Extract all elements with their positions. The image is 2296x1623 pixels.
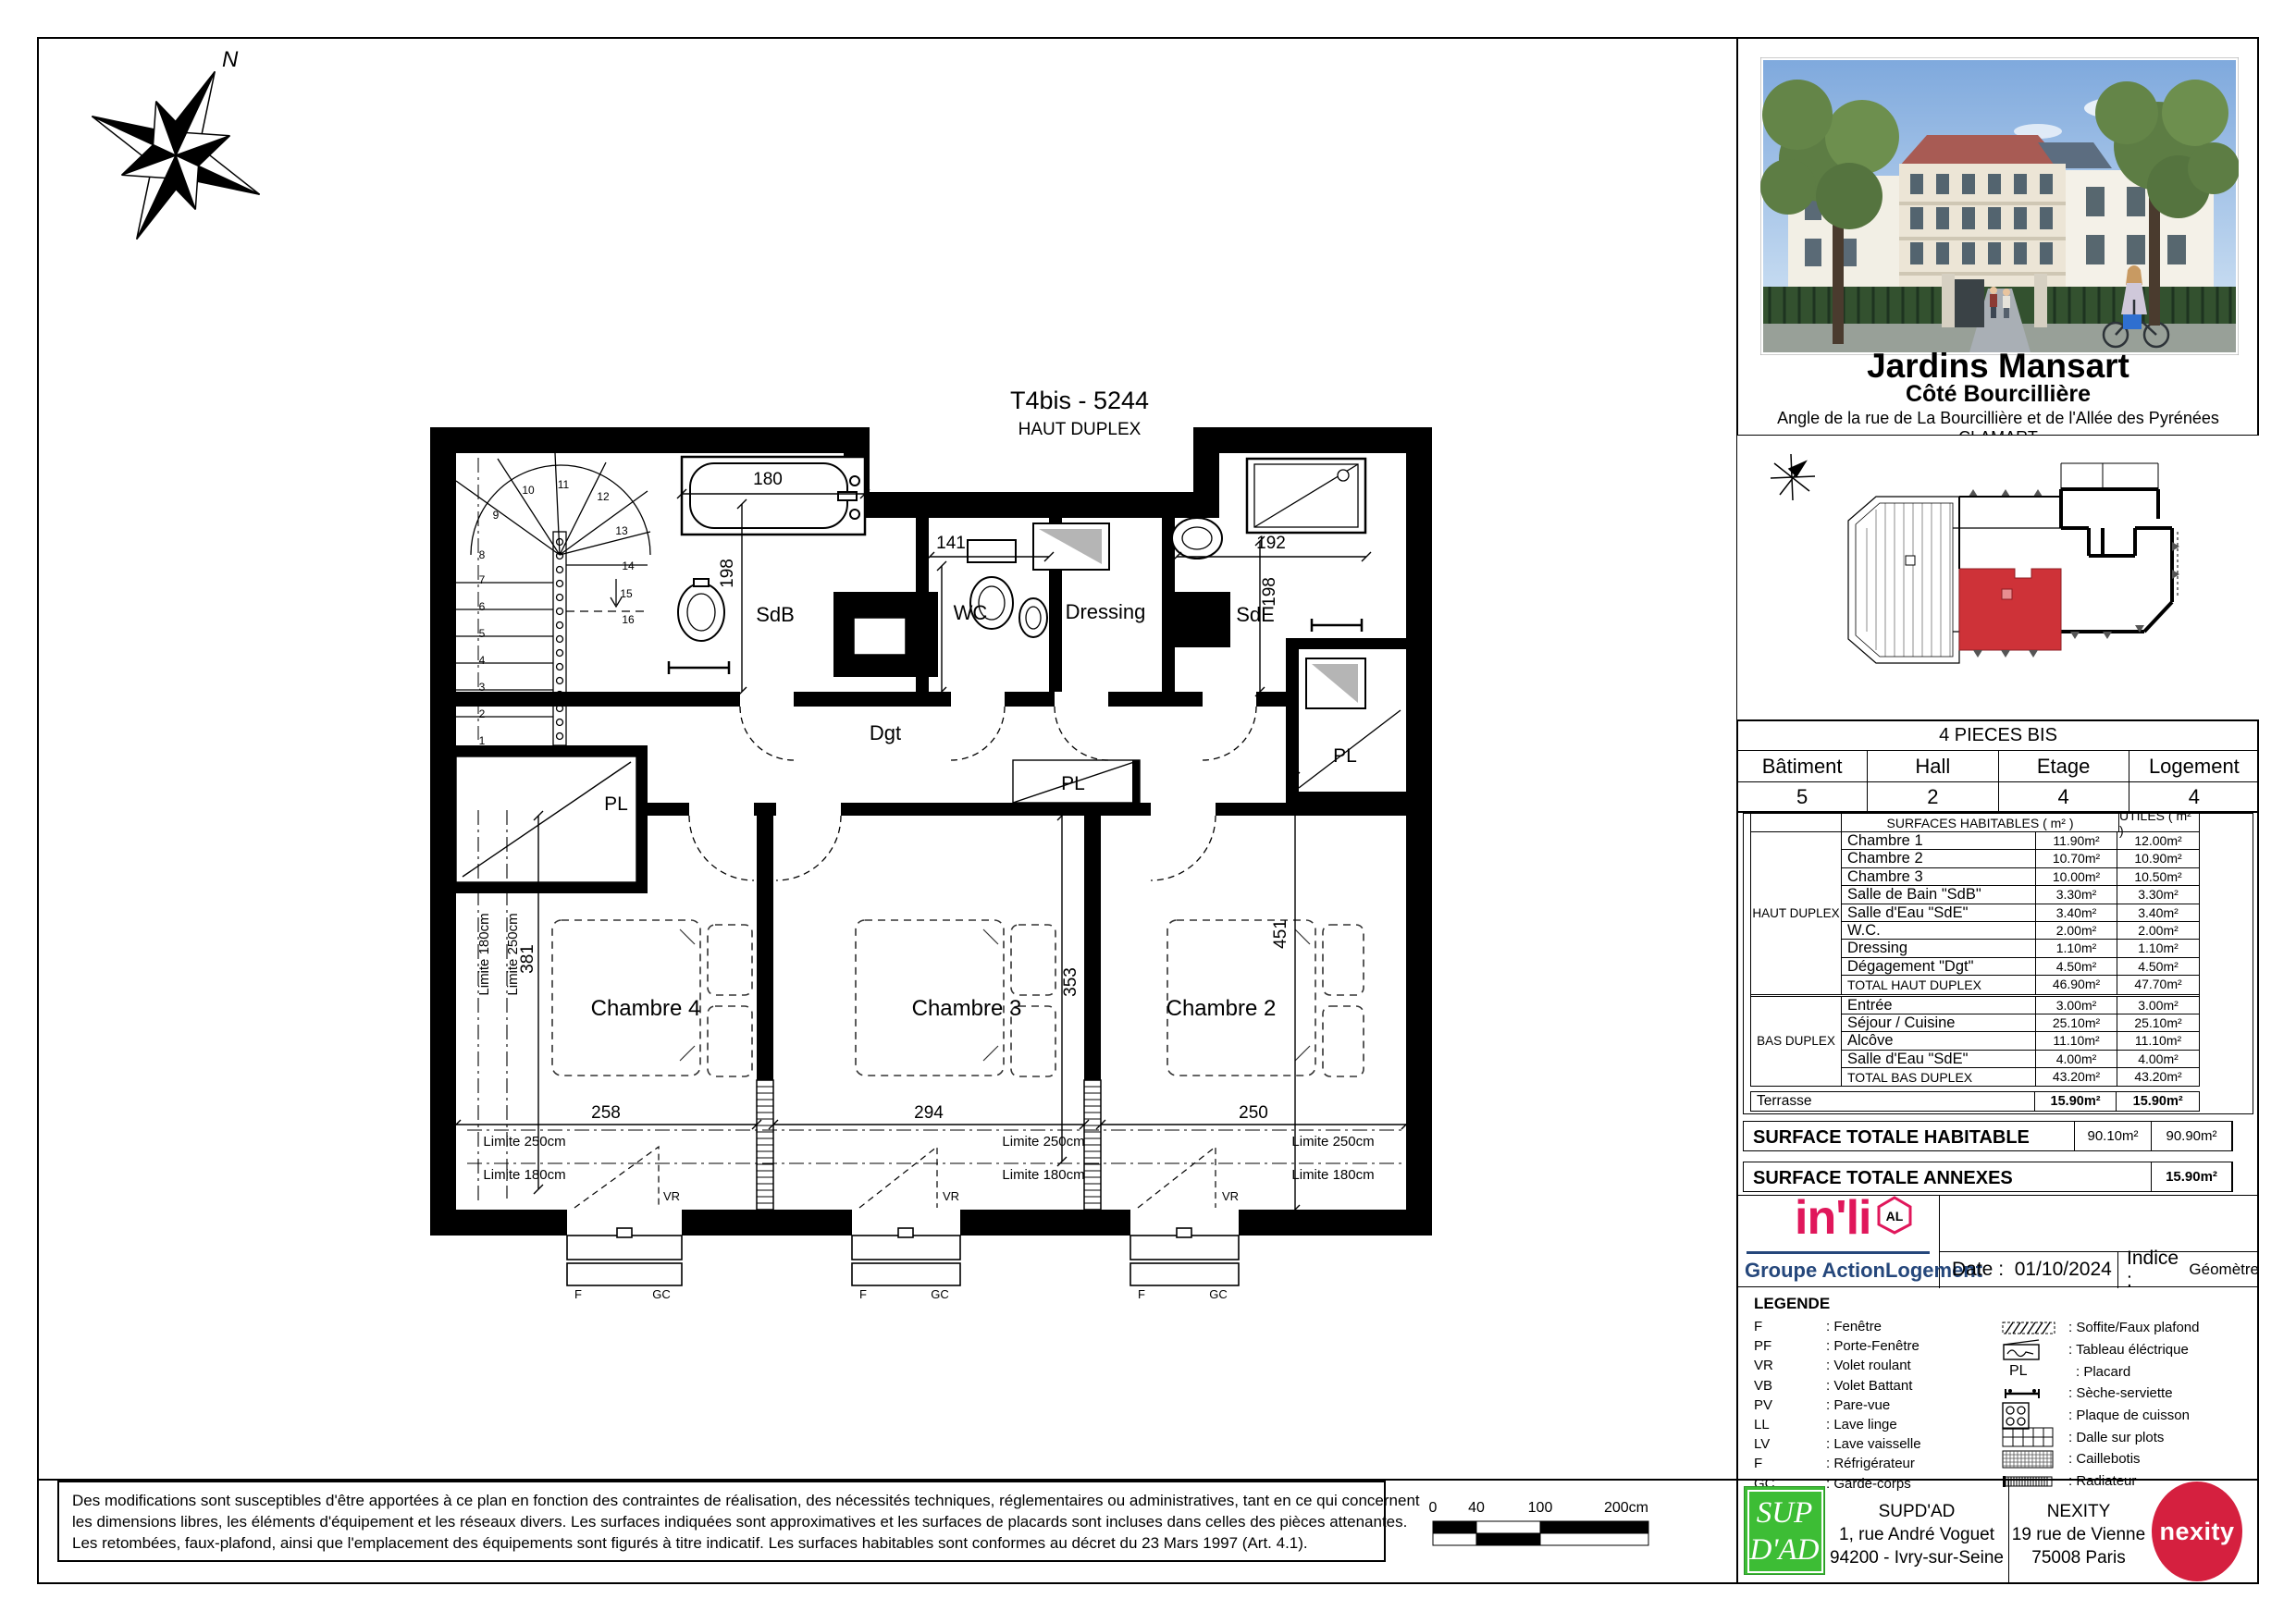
- unit-val-batiment: 5: [1737, 782, 1868, 811]
- dim-ch2-w: 250: [1239, 1103, 1268, 1123]
- stair-step-number: 6: [479, 600, 486, 613]
- room-label-dressing: Dressing: [1066, 600, 1146, 623]
- surface-row: Entrée3.00m²3.00m²: [1842, 997, 2199, 1014]
- terrasse-label: Terrasse: [1751, 1092, 2035, 1111]
- disclaimer-line3: Les retombées, faux-plafond, ainsi que l…: [72, 1532, 1384, 1554]
- svg-text:F: F: [1138, 1287, 1145, 1301]
- al-hexagon-icon: AL: [1876, 1196, 1913, 1235]
- dim-ch2-h: 451: [1271, 919, 1290, 949]
- legend-title: LEGENDE: [1754, 1295, 1830, 1313]
- window-ch4: [567, 1147, 682, 1285]
- limit-250-a: Limite 250cm: [483, 1134, 565, 1150]
- total-habitable-v2: 90.90m²: [2151, 1121, 2232, 1151]
- plan-sheet: N T4bis - 5244 HAUT DUPLEX: [0, 0, 2296, 1623]
- surface-group-label: HAUT DUPLEX: [1751, 832, 1842, 994]
- surface-row: Alcôve11.10m²11.10m²: [1842, 1032, 2199, 1050]
- svg-text:VR: VR: [943, 1189, 959, 1203]
- legend-abbreviations: F: FenêtrePF: Porte-FenêtreVR: Volet rou…: [1754, 1319, 1994, 1495]
- unit-val-etage: 4: [1999, 782, 2129, 811]
- stair-step-number: 9: [493, 509, 500, 522]
- legend: LEGENDE F: FenêtrePF: Porte-FenêtreVR: V…: [1737, 1287, 2259, 1479]
- surfaces-col-habitables: SURFACES HABITABLES ( m² ): [1842, 814, 2119, 831]
- svg-text:100: 100: [1528, 1500, 1553, 1516]
- svg-text:GC: GC: [931, 1287, 949, 1301]
- room-label-ch4: Chambre 4: [591, 996, 701, 1021]
- sdb-towel-rail-icon: [669, 661, 729, 674]
- svg-text:GC: GC: [1209, 1287, 1228, 1301]
- surface-group: BAS DUPLEXEntrée3.00m²3.00m²Séjour / Cui…: [1751, 997, 2199, 1087]
- surfaces-table: SURFACES HABITABLES ( m² ) UTILES ( m² )…: [1750, 813, 2200, 1087]
- svg-text:F: F: [859, 1287, 867, 1301]
- indice-cell: Indice : Géomètre: [2117, 1251, 2259, 1288]
- svg-text:200cm: 200cm: [1604, 1500, 1648, 1516]
- closet-label-mid: PL: [1061, 773, 1085, 794]
- supdad-logo-line2: D'AD: [1745, 1531, 1824, 1568]
- wc-washbasin-icon: [1019, 598, 1047, 637]
- dim-ch3-w: 294: [914, 1103, 944, 1123]
- surface-row: Chambre 310.00m²10.50m²: [1842, 868, 2199, 886]
- svg-text:40: 40: [1468, 1500, 1485, 1516]
- date-value: 01/10/2024: [2015, 1259, 2112, 1281]
- room-label-ch3: Chambre 3: [912, 996, 1022, 1021]
- surface-row: Salle d'Eau "SdE"3.40m²3.40m²: [1842, 904, 2199, 922]
- total-habitable-v1: 90.10m²: [2074, 1121, 2152, 1151]
- balusters: [557, 539, 563, 740]
- duct-inner: [854, 618, 906, 655]
- total-annexes-label: SURFACE TOTALE ANNEXES: [1753, 1168, 2013, 1189]
- inli-logo: in'li AL Groupe ActionLogement: [1737, 1196, 1939, 1288]
- nexity-wordmark: nexity: [2159, 1518, 2234, 1546]
- room-label-dgt: Dgt: [870, 721, 901, 744]
- unit-col-batiment: Bâtiment: [1737, 751, 1868, 781]
- scale-bar: 0 40 100 200cm: [1388, 1484, 1737, 1568]
- plaque-symbol-icon: [2002, 1402, 2068, 1430]
- stair-step-number: 11: [558, 478, 570, 491]
- dim-sde-w: 192: [1256, 534, 1286, 553]
- terrasse-row: Terrasse 15.90m² 15.90m²: [1750, 1091, 2200, 1112]
- svg-text:VR: VR: [1222, 1189, 1239, 1203]
- legend-symbol-row: : Tableau éléctrique: [2002, 1339, 2252, 1361]
- placard-symbol-icon: PL: [2002, 1363, 2076, 1380]
- legend-abbr-row: F: Réfrigérateur: [1754, 1456, 1994, 1475]
- seche-symbol-icon: [2002, 1387, 2068, 1400]
- legend-symbols: : Soffite/Faux plafond: Tableau éléctriq…: [2002, 1317, 2252, 1493]
- project-photo: [1760, 57, 2239, 355]
- terrasse-v1: 15.90m²: [2035, 1092, 2117, 1111]
- shower-icon: [1247, 459, 1365, 533]
- total-habitable-row: SURFACE TOTALE HABITABLE 90.10m² 90.90m²: [1743, 1121, 2233, 1151]
- unit-col-logement: Logement: [2129, 751, 2259, 781]
- dalle-symbol-icon: [2002, 1427, 2068, 1447]
- supdad-logo-line1: SUP: [1745, 1494, 1824, 1531]
- closet-label-left: PL: [604, 793, 628, 815]
- nexity-address: NEXITY 19 rue de Vienne 75008 Paris: [2008, 1500, 2149, 1569]
- compass-rose-icon: N: [53, 32, 299, 278]
- dim-tub: 180: [753, 470, 783, 489]
- dim-ch3-h: 353: [1061, 967, 1080, 997]
- legend-symbol-row: : Soffite/Faux plafond: [2002, 1317, 2252, 1339]
- surface-row: Dégagement "Dgt"4.50m²4.50m²: [1842, 958, 2199, 976]
- sde-towel-rail-icon: [1312, 619, 1362, 632]
- north-label: N: [222, 47, 239, 72]
- legend-abbr-row: PV: Pare-vue: [1754, 1397, 1994, 1417]
- limit-180-a: Limite 180cm: [483, 1167, 565, 1183]
- floor-plan: N T4bis - 5244 HAUT DUPLEX: [0, 0, 1737, 1480]
- unit-col-hall: Hall: [1868, 751, 1998, 781]
- legend-symbol-row: : Plaque de cuisson: [2002, 1405, 2252, 1427]
- brand-block: in'li AL Groupe ActionLogement Date : 01…: [1737, 1195, 2259, 1287]
- caillebotis-symbol-icon: [2002, 1450, 2068, 1469]
- nexity-addr2: 75008 Paris: [2008, 1546, 2149, 1569]
- unit-val-hall: 2: [1868, 782, 1998, 811]
- key-plan-unit-highlight: [1959, 569, 2061, 650]
- windows: [567, 1147, 1239, 1285]
- dim-ch4-h: 381: [518, 944, 537, 974]
- svg-text:GC: GC: [652, 1287, 671, 1301]
- unit-val-logement: 4: [2129, 782, 2259, 811]
- unit-col-etage: Etage: [1999, 751, 2129, 781]
- legend-symbol-row: PL: Placard: [2002, 1360, 2252, 1383]
- legend-abbr-row: LV: Lave vaisselle: [1754, 1436, 1994, 1456]
- limit-180-c: Limite 180cm: [1291, 1167, 1374, 1183]
- stair-step-number: 4: [479, 654, 486, 667]
- legend-abbr-row: VR: Volet roulant: [1754, 1358, 1994, 1377]
- legend-abbr-row: F: Fenêtre: [1754, 1319, 1994, 1338]
- total-annexes-v: 15.90m²: [2151, 1162, 2232, 1192]
- dim-sde-h: 198: [1260, 577, 1279, 607]
- surface-group-label: BAS DUPLEX: [1751, 997, 1842, 1087]
- surface-row: W.C.2.00m²2.00m²: [1842, 922, 2199, 940]
- nexity-addr1: 19 rue de Vienne: [2008, 1523, 2149, 1546]
- legend-abbr-row: PF: Porte-Fenêtre: [1754, 1338, 1994, 1358]
- surface-row: Salle d'Eau "SdE"4.00m²4.00m²: [1842, 1051, 2199, 1068]
- stair-step-number: 12: [597, 490, 610, 503]
- limit-250-c: Limite 250cm: [1291, 1134, 1374, 1150]
- type-header-row: 4 PIECES BIS: [1737, 719, 2259, 751]
- limit-250-v: Limite 250cm: [505, 913, 521, 995]
- type-header: 4 PIECES BIS: [1939, 725, 2057, 746]
- surfaces-col-utiles: UTILES ( m² ): [2119, 814, 2199, 831]
- limit-250-b: Limite 250cm: [1002, 1134, 1084, 1150]
- window-ch3: [852, 1147, 960, 1285]
- closet-label-right: PL: [1333, 745, 1357, 767]
- dim-sdb-h: 198: [718, 559, 737, 588]
- legend-abbr-row: LL: Lave linge: [1754, 1417, 1994, 1436]
- surface-row: TOTAL HAUT DUPLEX46.90m²47.70m²: [1842, 976, 2199, 993]
- surface-row: TOTAL BAS DUPLEX43.20m²43.20m²: [1842, 1068, 2199, 1086]
- window-ch2: [1130, 1147, 1239, 1285]
- doors: [689, 707, 1256, 880]
- inli-wordmark: in'li: [1795, 1190, 1870, 1246]
- surface-group: HAUT DUPLEXChambre 111.90m²12.00m²Chambr…: [1751, 832, 2199, 997]
- project-subtitle: Côté Bourcillière: [1737, 383, 2259, 406]
- key-plan: [1737, 436, 2259, 719]
- bathtub-icon: [682, 457, 865, 535]
- supdad-addr1: 1, rue André Voguet: [1825, 1523, 2008, 1546]
- total-annexes-row: SURFACE TOTALE ANNEXES 15.90m²: [1743, 1162, 2233, 1192]
- rooflight-icon: [1033, 523, 1109, 570]
- plan-subtitle: HAUT DUPLEX: [1018, 420, 1142, 439]
- nexity-name: NEXITY: [2008, 1500, 2149, 1523]
- surface-row: Salle de Bain "SdB"3.30m²3.30m²: [1842, 886, 2199, 904]
- indice-label: Indice :: [2127, 1248, 2185, 1292]
- terrasse-v2: 15.90m²: [2117, 1092, 2199, 1111]
- room-label-sdb: SdB: [756, 603, 795, 626]
- dim-ch4-w: 258: [591, 1103, 621, 1123]
- disclaimer-line1: Des modifications sont susceptibles d'êt…: [72, 1490, 1384, 1511]
- stair-step-number: 10: [522, 484, 535, 497]
- surface-row: Dressing1.10m²1.10m²: [1842, 940, 2199, 957]
- rooflight-icon-2: [1306, 658, 1365, 708]
- stair-step-number: 13: [615, 524, 628, 537]
- stair-step-number: 2: [479, 707, 486, 720]
- svg-text:F: F: [574, 1287, 582, 1301]
- indice-value: Géomètre: [2189, 1260, 2259, 1279]
- unit-table-header: Bâtiment Hall Etage Logement: [1737, 751, 2259, 782]
- nexity-logo: nexity: [2152, 1482, 2242, 1581]
- room-label-ch2: Chambre 2: [1167, 996, 1277, 1021]
- tableau-symbol-icon: [2002, 1339, 2068, 1361]
- date-label: Date :: [1952, 1259, 2004, 1281]
- stair-step-number: 1: [479, 734, 486, 747]
- supdad-logo: SUP D'AD: [1744, 1486, 1825, 1575]
- legend-symbol-row: : Caillebotis: [2002, 1448, 2252, 1470]
- svg-text:VR: VR: [663, 1189, 680, 1203]
- surface-row: Séjour / Cuisine25.10m²25.10m²: [1842, 1014, 2199, 1032]
- room-label-wc: WC: [954, 601, 988, 624]
- footer-logos: SUP D'AD SUPD'AD 1, rue André Voguet 942…: [1737, 1480, 2259, 1584]
- svg-text:0: 0: [1429, 1500, 1438, 1516]
- project-name: Jardins Mansart: [1737, 350, 2259, 383]
- plan-title: T4bis - 5244: [1010, 387, 1149, 414]
- disclaimer-line2: les dimensions libres, les éléments d'éq…: [72, 1511, 1384, 1532]
- supdad-address: SUPD'AD 1, rue André Voguet 94200 - Ivry…: [1825, 1500, 2008, 1569]
- surfaces-header: SURFACES HABITABLES ( m² ) UTILES ( m² ): [1751, 814, 2199, 832]
- closets: [456, 710, 1401, 882]
- dim-wc-h: 148: [916, 591, 935, 621]
- supdad-name: SUPD'AD: [1825, 1500, 2008, 1523]
- sde-washbasin-icon: [1172, 518, 1222, 559]
- limit-180-b: Limite 180cm: [1002, 1167, 1084, 1183]
- stair-step-number: 7: [479, 573, 486, 586]
- stair-step-number: 14: [622, 559, 635, 572]
- stair-step-number: 16: [622, 613, 635, 626]
- stair-step-number: 8: [479, 548, 486, 561]
- stair-step-number: 3: [479, 681, 486, 694]
- soffite-symbol-icon: [2002, 1321, 2068, 1335]
- surface-row: Chambre 210.70m²10.90m²: [1842, 850, 2199, 867]
- stair-step-number: 15: [620, 587, 633, 600]
- surface-row: Chambre 111.90m²12.00m²: [1842, 832, 2199, 850]
- legend-abbr-row: VB: Volet Battant: [1754, 1378, 1994, 1397]
- legend-symbol-row: : Dalle sur plots: [2002, 1426, 2252, 1448]
- svg-text:AL: AL: [1886, 1209, 1904, 1223]
- stair-step-number: 5: [479, 627, 486, 640]
- dim-wc-w: 141: [936, 534, 966, 553]
- project-address: Angle de la rue de La Bourcillière et de…: [1737, 408, 2259, 428]
- date-cell: Date : 01/10/2024: [1939, 1251, 2117, 1288]
- disclaimer-box: Des modifications sont susceptibles d'êt…: [57, 1481, 1386, 1562]
- total-habitable-label: SURFACE TOTALE HABITABLE: [1753, 1127, 2030, 1149]
- limit-180-v: Limite 180cm: [476, 913, 492, 995]
- supdad-addr2: 94200 - Ivry-sur-Seine: [1825, 1546, 2008, 1569]
- project-title-block: Jardins Mansart Côté Bourcillière Angle …: [1737, 350, 2259, 448]
